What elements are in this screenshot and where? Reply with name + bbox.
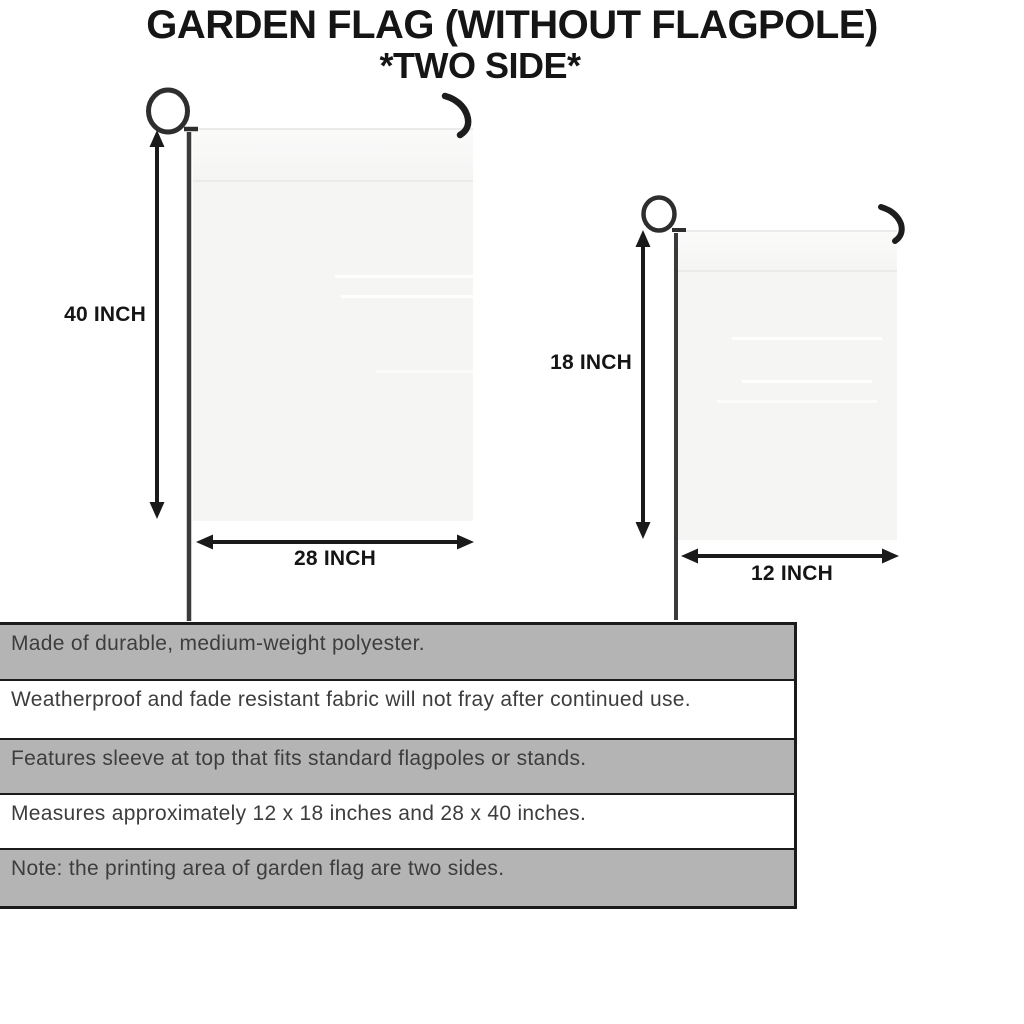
small-flag-height-arrow <box>636 230 651 539</box>
large-flag-height-arrow <box>150 130 165 519</box>
page-title: GARDEN FLAG (WITHOUT FLAGPOLE) *TWO SIDE… <box>0 4 1024 85</box>
large-flag-pole <box>149 90 199 621</box>
large-flag-height-label: 40 INCH <box>30 302 146 328</box>
page-title-line-1: GARDEN FLAG (WITHOUT FLAGPOLE) <box>0 4 1024 46</box>
large-flag-width-label: 28 INCH <box>235 546 435 572</box>
pole-loop-icon <box>149 90 188 132</box>
feature-row-text: Weatherproof and fade resistant fabric w… <box>11 688 691 711</box>
large-garden-flag-mockup <box>193 128 473 521</box>
feature-row: Features sleeve at top that fits standar… <box>0 740 794 795</box>
small-flag-height-label: 18 INCH <box>492 350 632 376</box>
pole-loop-icon <box>644 198 675 231</box>
feature-row-text: Note: the printing area of garden flag a… <box>11 857 504 880</box>
features-table: Made of durable, medium-weight polyester… <box>0 622 797 909</box>
feature-row: Measures approximately 12 x 18 inches an… <box>0 795 794 850</box>
small-garden-flag-mockup <box>677 230 897 540</box>
page-title-line-2: *TWO SIDE* <box>0 47 992 85</box>
feature-row-text: Features sleeve at top that fits standar… <box>11 747 586 770</box>
feature-row-text: Measures approximately 12 x 18 inches an… <box>11 802 586 825</box>
feature-row: Weatherproof and fade resistant fabric w… <box>0 681 794 740</box>
feature-row: Note: the printing area of garden flag a… <box>0 850 794 906</box>
feature-row-text: Made of durable, medium-weight polyester… <box>11 632 425 655</box>
product-size-diagram-page: GARDEN FLAG (WITHOUT FLAGPOLE) *TWO SIDE… <box>0 0 1024 1024</box>
feature-row: Made of durable, medium-weight polyester… <box>0 625 794 681</box>
small-flag-width-label: 12 INCH <box>692 561 892 587</box>
